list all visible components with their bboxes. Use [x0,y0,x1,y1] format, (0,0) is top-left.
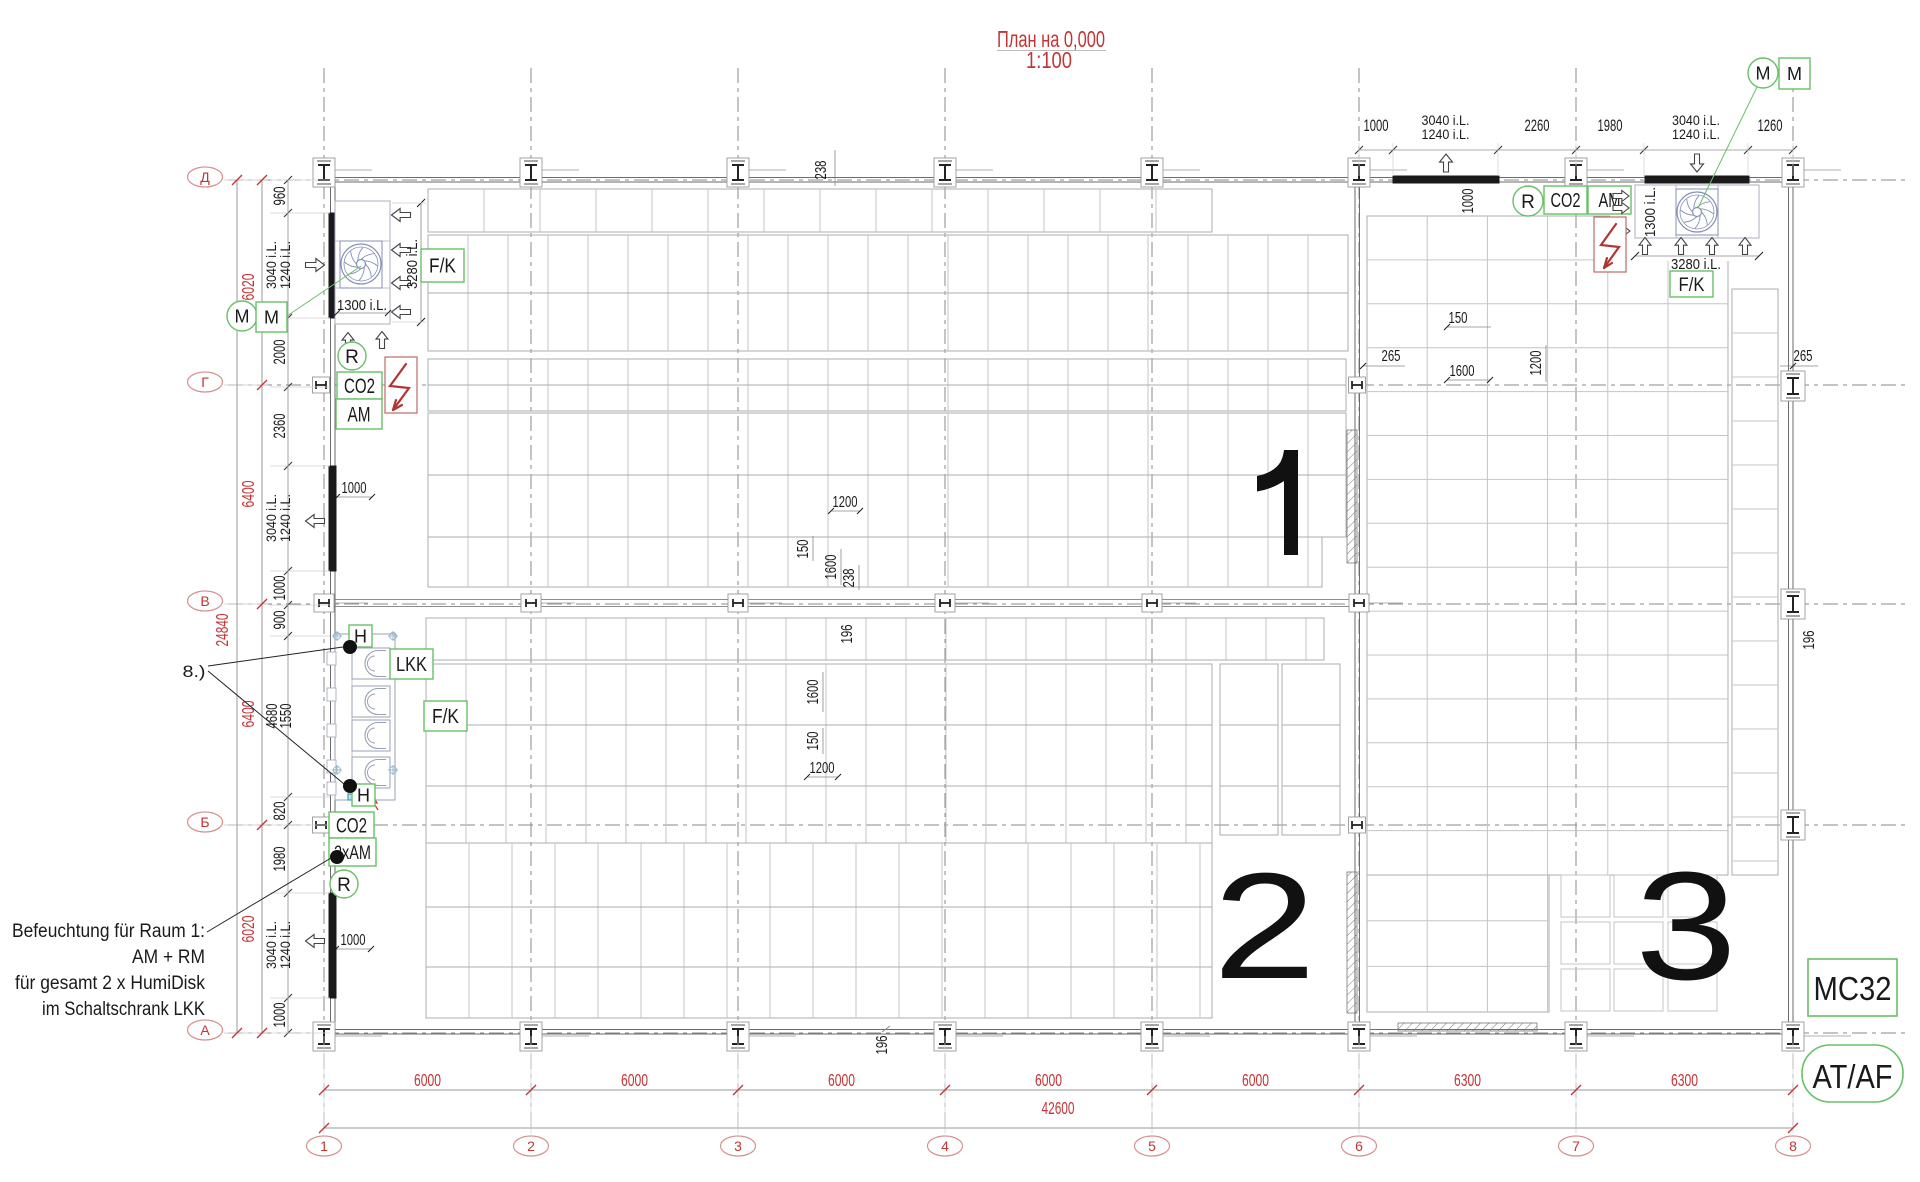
svg-text:238: 238 [841,568,858,587]
svg-text:2: 2 [527,1138,535,1154]
svg-text:1600: 1600 [823,554,840,579]
svg-text:265: 265 [1382,348,1401,365]
svg-text:1980: 1980 [1598,117,1623,135]
svg-text:für gesamt 2 x HumiDisk: für gesamt 2 x HumiDisk [15,973,205,994]
svg-text:1300 i.L.: 1300 i.L. [1642,187,1659,237]
svg-text:1980: 1980 [271,847,289,872]
svg-text:AM + RM: AM + RM [132,947,205,968]
svg-text:1600: 1600 [805,679,822,704]
svg-text:Б: Б [200,814,209,830]
svg-text:6000: 6000 [828,1070,855,1090]
svg-text:24840: 24840 [212,613,232,646]
svg-text:1000: 1000 [342,480,367,497]
svg-text:Г: Г [201,374,209,390]
svg-text:150: 150 [795,539,812,558]
svg-text:2360: 2360 [271,414,289,439]
svg-text:AT/AF: AT/AF [1813,1058,1893,1095]
svg-text:6000: 6000 [1035,1070,1062,1090]
svg-text:150: 150 [805,731,822,750]
svg-text:1200: 1200 [1528,350,1545,375]
svg-text:1550: 1550 [278,703,295,728]
svg-text:AM: AM [348,404,371,427]
svg-text:F/K: F/K [429,256,457,278]
svg-text:В: В [200,593,209,609]
svg-text:6300: 6300 [1454,1070,1481,1090]
svg-text:F/K: F/K [1679,275,1705,296]
svg-text:150: 150 [1449,310,1468,327]
svg-text:Befeuchtung für Raum 1:: Befeuchtung für Raum 1: [12,921,205,942]
svg-text:1300 i.L.: 1300 i.L. [337,297,387,314]
svg-text:8: 8 [1789,1138,1797,1154]
svg-text:1000: 1000 [1460,188,1477,213]
svg-text:4: 4 [941,1138,949,1154]
svg-text:238: 238 [813,160,830,179]
svg-text:R: R [1521,192,1535,213]
svg-text:1240 i.L.: 1240 i.L. [277,494,293,542]
svg-text:M: M [1756,63,1771,83]
svg-text:900: 900 [271,611,289,630]
svg-text:196: 196 [1801,630,1818,649]
svg-text:5: 5 [1148,1138,1156,1154]
svg-text:3280 i.L.: 3280 i.L. [404,239,421,289]
svg-text:265: 265 [1794,348,1813,365]
svg-text:1000: 1000 [1364,117,1389,135]
svg-text:Д: Д [200,169,210,185]
svg-text:1200: 1200 [833,494,858,511]
svg-text:2260: 2260 [1525,117,1550,135]
svg-text:LKK: LKK [396,654,428,676]
svg-text:6000: 6000 [1242,1070,1269,1090]
svg-text:6400: 6400 [238,480,258,507]
svg-text:42600: 42600 [1042,1098,1075,1118]
svg-text:1240 i.L.: 1240 i.L. [277,241,293,289]
svg-text:6020: 6020 [238,915,258,942]
svg-text:3: 3 [1635,840,1737,1012]
svg-text:1260: 1260 [1758,117,1783,135]
svg-text:А: А [200,1022,210,1038]
svg-text:MC32: MC32 [1814,970,1892,1007]
svg-text:M: M [235,306,250,326]
svg-text:1240 i.L.: 1240 i.L. [1672,126,1720,142]
svg-text:1600: 1600 [1450,363,1475,380]
svg-text:1200: 1200 [810,760,835,777]
svg-text:F/K: F/K [432,706,460,728]
svg-text:M: M [1787,64,1802,84]
svg-text:R: R [337,875,351,896]
svg-text:1:100: 1:100 [1026,47,1072,73]
svg-text:2000: 2000 [271,340,289,365]
svg-text:1240 i.L.: 1240 i.L. [1422,126,1470,142]
svg-text:960: 960 [271,187,289,206]
svg-text:CO2: CO2 [336,815,367,838]
svg-text:1: 1 [320,1138,328,1154]
svg-text:196: 196 [874,1035,891,1054]
svg-text:1000: 1000 [341,932,366,949]
svg-text:1000: 1000 [271,576,289,601]
svg-text:6020: 6020 [238,273,258,300]
svg-text:820: 820 [271,802,289,821]
svg-text:H: H [357,785,370,805]
svg-text:1240 i.L.: 1240 i.L. [277,921,293,969]
svg-text:R: R [345,347,359,368]
svg-text:6000: 6000 [414,1070,441,1090]
svg-text:CO2: CO2 [1551,190,1581,212]
svg-text:6300: 6300 [1671,1070,1698,1090]
svg-text:6000: 6000 [621,1070,648,1090]
svg-text:196: 196 [839,624,856,643]
svg-text:2: 2 [1213,842,1316,1011]
svg-text:CO2: CO2 [344,375,375,398]
svg-text:3: 3 [734,1138,742,1154]
svg-text:6: 6 [1355,1138,1363,1154]
svg-text:M: M [264,307,279,327]
svg-text:1000: 1000 [271,1003,289,1028]
svg-text:7: 7 [1572,1138,1580,1154]
svg-text:8.): 8.) [183,662,206,681]
svg-text:im Schaltschrank LKK: im Schaltschrank LKK [42,999,205,1020]
